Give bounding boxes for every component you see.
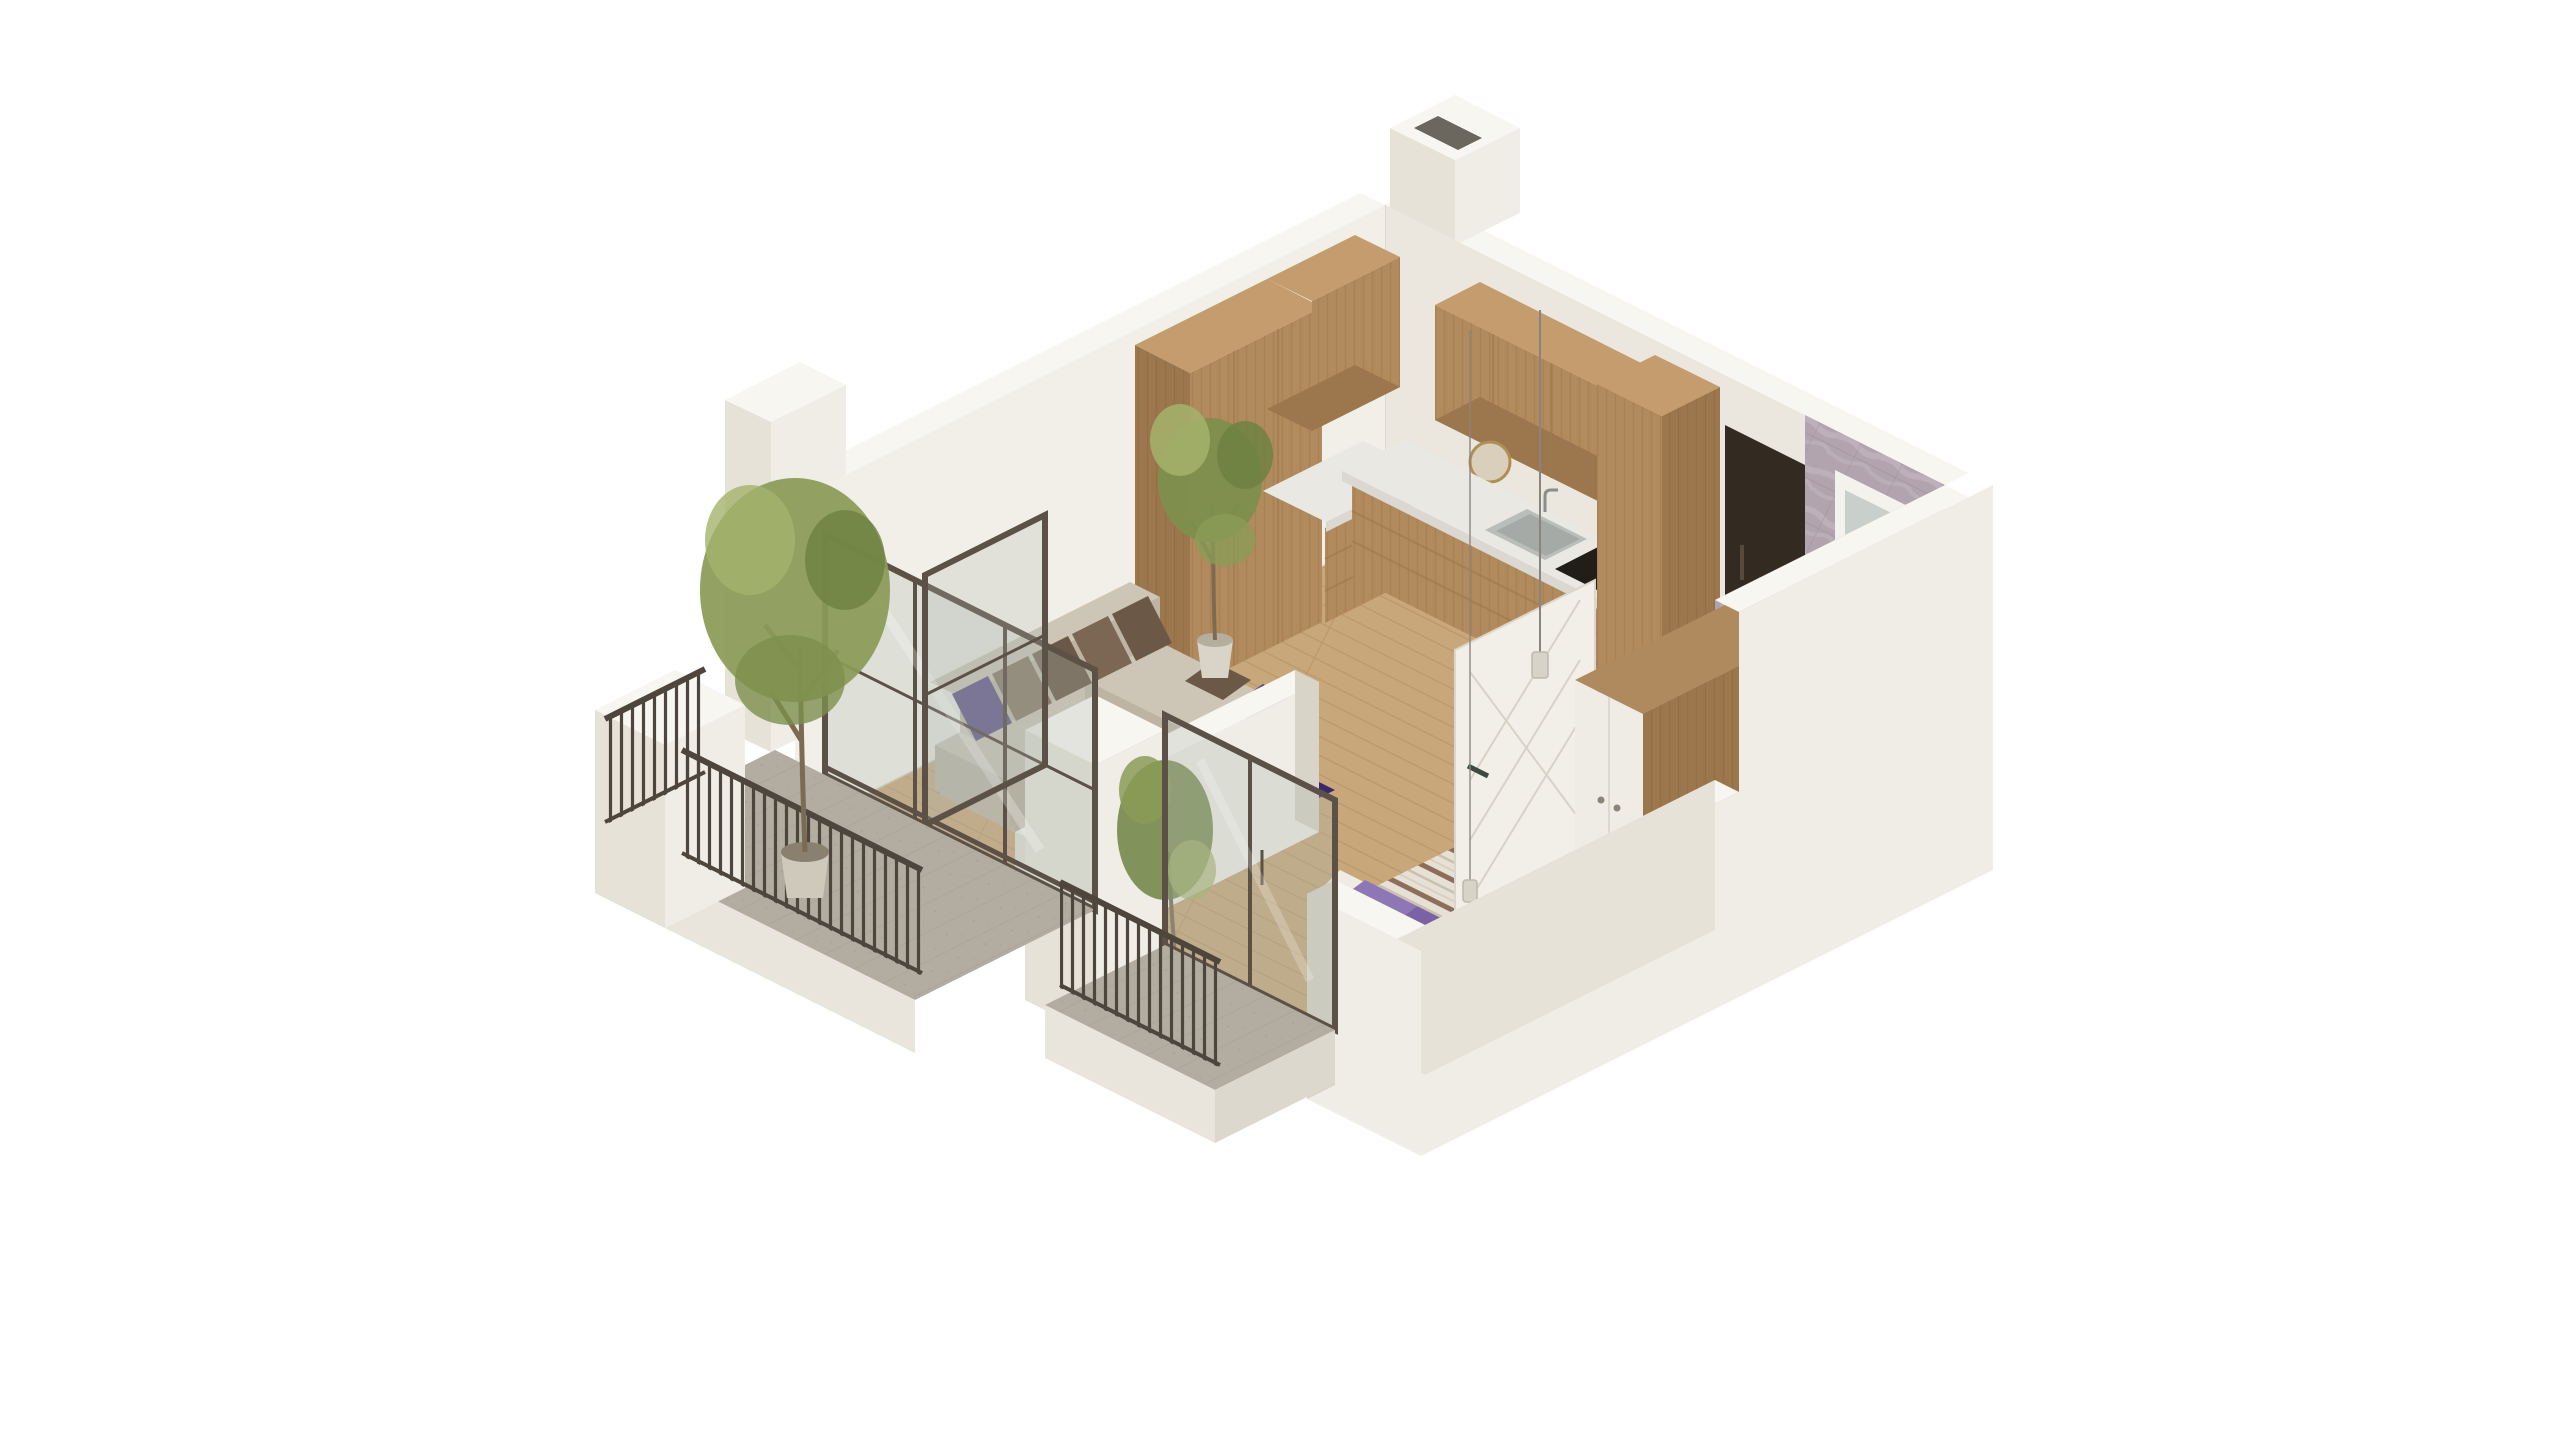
plant-foliage-2 — [1150, 404, 1210, 476]
isometric-apartment-scene — [0, 0, 2560, 1440]
balcony-tree-foliage-3 — [805, 510, 885, 610]
wardrobe-knob-2 — [1614, 805, 1621, 812]
pendant-shade-2 — [1463, 880, 1477, 902]
balcony-tree-foliage-2 — [705, 485, 795, 595]
balcony-tree-foliage-4 — [735, 635, 845, 725]
pendant-shade-1 — [1532, 652, 1548, 678]
plant-foliage-3 — [1217, 421, 1273, 489]
render-canvas — [0, 0, 2560, 1440]
wardrobe-knob-1 — [1598, 797, 1605, 804]
plant-foliage-4 — [1195, 514, 1255, 566]
